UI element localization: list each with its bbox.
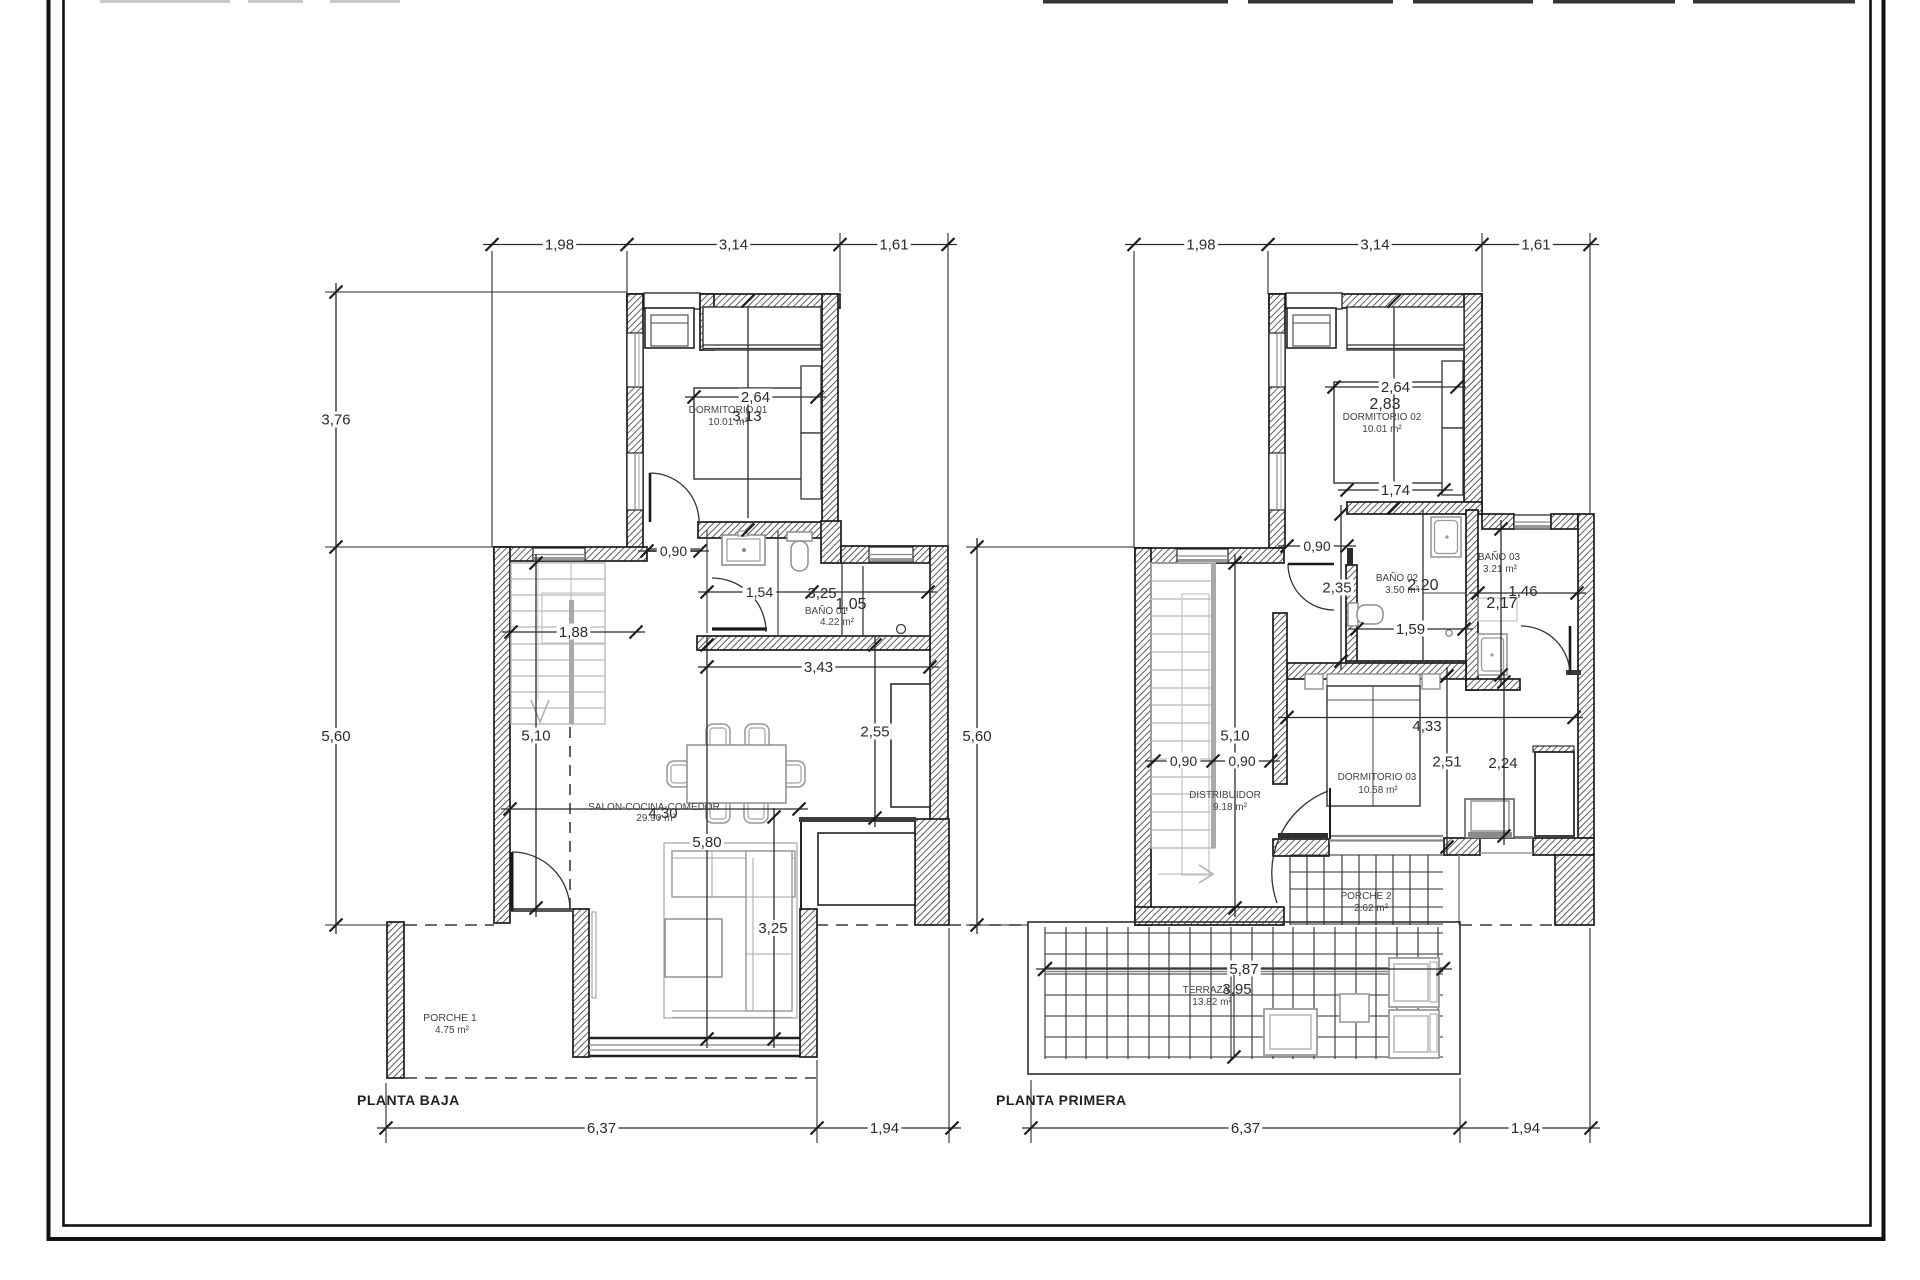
svg-text:PLANTA PRIMERA: PLANTA PRIMERA	[996, 1092, 1127, 1108]
svg-text:6,37: 6,37	[1231, 1120, 1260, 1137]
svg-text:0,90: 0,90	[660, 543, 687, 559]
svg-text:2,55: 2,55	[860, 724, 889, 741]
svg-text:2,35: 2,35	[1322, 580, 1351, 597]
svg-text:5,10: 5,10	[521, 728, 550, 745]
svg-text:3,25: 3,25	[758, 920, 787, 937]
svg-text:2,51: 2,51	[1432, 754, 1461, 771]
svg-text:10.01 m²: 10.01 m²	[1362, 424, 1402, 435]
svg-text:5,80: 5,80	[692, 834, 721, 851]
svg-text:BAÑO 03: BAÑO 03	[1478, 550, 1521, 563]
svg-text:BAÑO 01: BAÑO 01	[805, 604, 848, 617]
svg-text:1,74: 1,74	[1381, 482, 1410, 499]
svg-text:PORCHE 1: PORCHE 1	[423, 1012, 477, 1024]
svg-text:2.62 m²: 2.62 m²	[1354, 903, 1389, 914]
svg-text:6,37: 6,37	[587, 1120, 616, 1137]
svg-text:4,33: 4,33	[1412, 718, 1441, 735]
svg-text:0,90: 0,90	[1303, 538, 1330, 554]
svg-text:2,64: 2,64	[741, 389, 770, 406]
svg-text:1,61: 1,61	[1521, 237, 1550, 254]
svg-text:9.18 m²: 9.18 m²	[1213, 802, 1248, 813]
svg-text:2,17: 2,17	[1486, 595, 1517, 612]
svg-text:DORMITORIO 03: DORMITORIO 03	[1338, 772, 1417, 783]
svg-text:3,14: 3,14	[719, 237, 748, 254]
svg-text:1,88: 1,88	[559, 624, 588, 641]
svg-text:29.90 m²: 29.90 m²	[636, 813, 676, 824]
svg-text:4.75 m²: 4.75 m²	[435, 1025, 470, 1036]
svg-text:2,64: 2,64	[1381, 379, 1410, 396]
svg-text:1,59: 1,59	[1396, 621, 1425, 638]
svg-text:3,14: 3,14	[1360, 237, 1389, 254]
svg-text:5,60: 5,60	[962, 728, 991, 745]
svg-text:1,61: 1,61	[879, 237, 908, 254]
svg-text:1,98: 1,98	[545, 237, 574, 254]
svg-text:5,60: 5,60	[321, 728, 350, 745]
svg-text:SALON-COCINA-COMEDOR: SALON-COCINA-COMEDOR	[588, 802, 720, 813]
svg-text:5,10: 5,10	[1220, 728, 1249, 745]
svg-text:4.22 m²: 4.22 m²	[820, 617, 855, 628]
svg-text:2,83: 2,83	[1369, 396, 1400, 413]
svg-text:DISTRIBUIDOR: DISTRIBUIDOR	[1189, 790, 1261, 801]
svg-text:1,94: 1,94	[1511, 1120, 1540, 1137]
svg-text:10.58 m²: 10.58 m²	[1358, 785, 1398, 796]
svg-text:10.01 m²: 10.01 m²	[708, 417, 748, 428]
svg-text:3.21 m²: 3.21 m²	[1483, 564, 1518, 575]
svg-text:1,94: 1,94	[870, 1120, 899, 1137]
svg-text:13.82 m²: 13.82 m²	[1192, 997, 1232, 1008]
svg-text:3,76: 3,76	[321, 412, 350, 429]
svg-text:TERRAZA: TERRAZA	[1183, 985, 1230, 996]
svg-text:1,98: 1,98	[1186, 237, 1215, 254]
svg-text:3,43: 3,43	[804, 659, 833, 676]
svg-text:DORMITORIO 02: DORMITORIO 02	[1343, 412, 1422, 423]
svg-text:PORCHE 2: PORCHE 2	[1340, 891, 1392, 902]
svg-text:1,54: 1,54	[746, 584, 773, 600]
svg-text:PLANTA BAJA: PLANTA BAJA	[357, 1092, 460, 1108]
svg-text:3,25: 3,25	[807, 585, 836, 602]
svg-text:0,90: 0,90	[1170, 753, 1197, 769]
svg-text:DORMITORIO 01: DORMITORIO 01	[689, 405, 768, 416]
svg-text:0,90: 0,90	[1228, 753, 1255, 769]
svg-text:2,24: 2,24	[1488, 755, 1517, 772]
